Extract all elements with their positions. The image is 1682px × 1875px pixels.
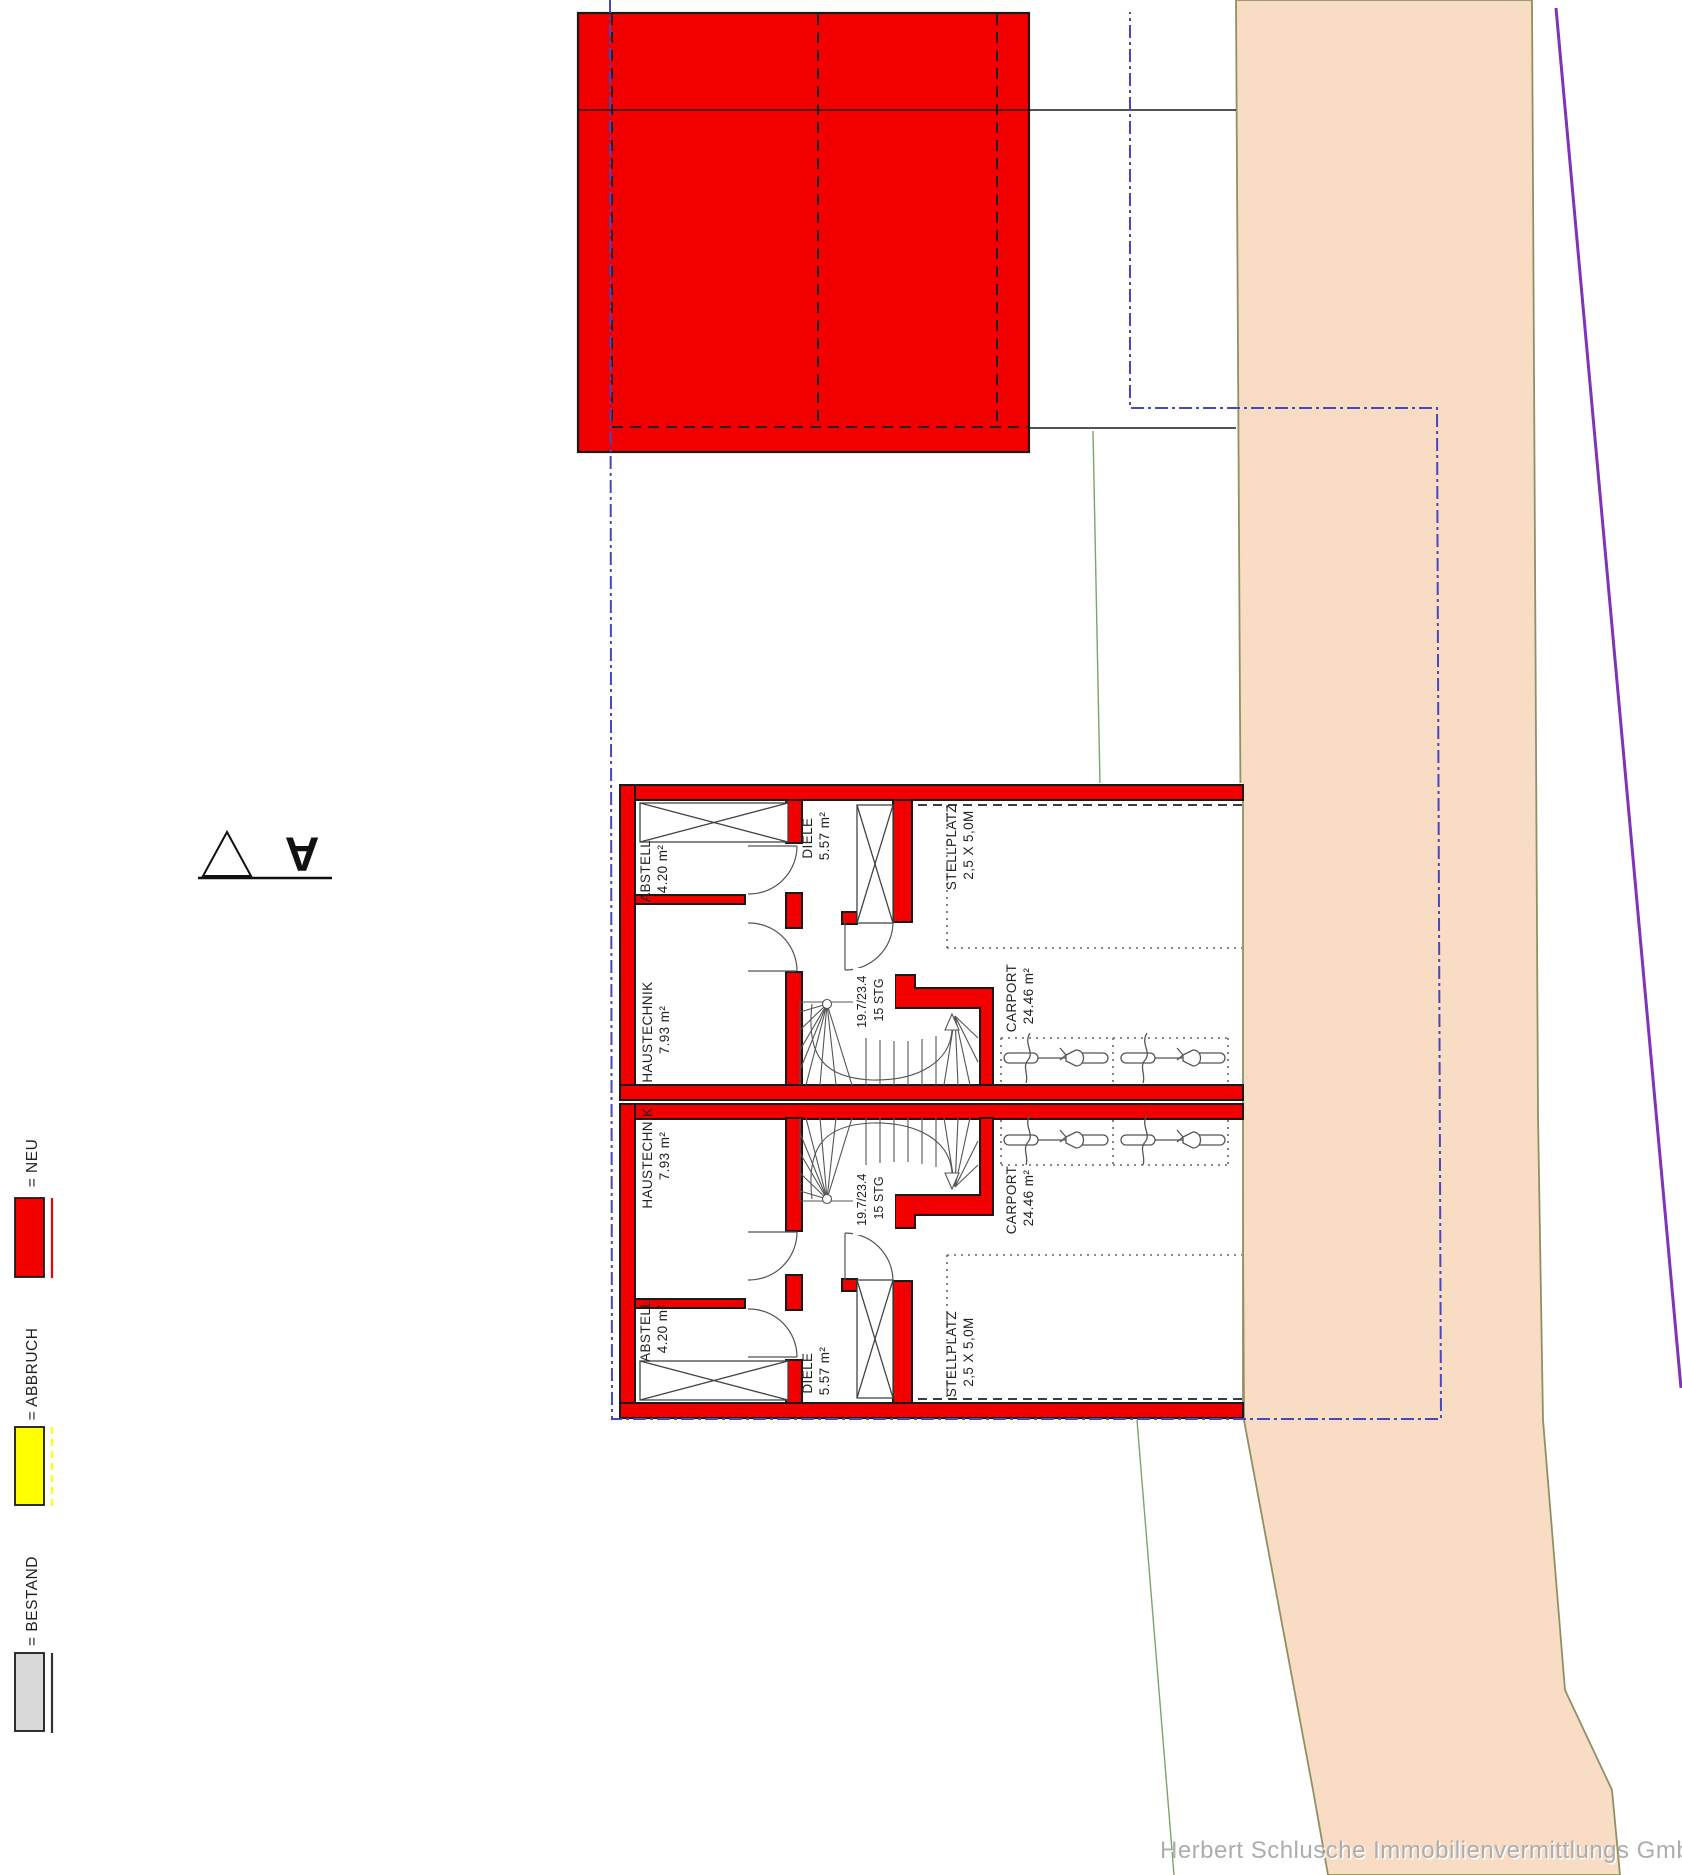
legend-label-neu: = NEU [24,1139,41,1188]
wall-u2-bottom [620,1403,1243,1418]
closet-u1-diele [857,805,893,923]
legend-swatch-bestand [15,1653,44,1731]
new-building-fill [578,13,1029,452]
closet-u2-abstell [640,1361,788,1400]
wall-u1-left [620,785,635,1100]
wall-u2-mid [786,1275,802,1310]
wall-party-lower [620,1104,1243,1119]
stair-newel-post [823,1195,832,1204]
site-plan-drawing: ABSTELL 4.20 m² DIELE 5.57 m² HAUSTECHNI… [0,0,1682,1875]
wall-u2-door-stub [842,1279,857,1291]
wall-party-upper [620,1085,1243,1100]
legend: = NEU = ABBRUCH = BESTAND [15,1139,52,1733]
legend-label-abbruch: = ABBRUCH [24,1328,41,1421]
section-marker-letter: A [285,827,320,880]
legend-swatch-abbruch [15,1427,44,1505]
road-area [1236,0,1620,1875]
terrain-line-green-lower [1137,1420,1174,1875]
legend-label-bestand: = BESTAND [24,1556,41,1646]
wall-u1-door-stub [842,912,857,924]
site-plan-sheet: ABSTELL 4.20 m² DIELE 5.57 m² HAUSTECHNI… [0,0,1682,1875]
wall-u2-left [620,1104,635,1418]
plan-background [616,783,1243,1420]
new-building-block [578,13,1236,452]
closet-u1-abstell [640,803,788,842]
wall-u1-diele [893,800,912,922]
terrain-line-green-upper [1093,431,1100,785]
wall-u2-diele [893,1281,912,1403]
boundary-line-purple [1556,8,1681,1388]
watermark: Herbert Schlusche Immobilienvermittlungs… [1160,1837,1682,1864]
legend-swatch-neu [15,1198,44,1277]
wall-u1-mid [786,893,802,928]
wall-u1-top [620,785,1243,800]
closet-u2-diele [857,1280,893,1398]
stair-newel-post [823,1000,832,1009]
section-marker-triangle [203,832,251,876]
floorplan: ABSTELL 4.20 m² DIELE 5.57 m² HAUSTECHNI… [616,783,1243,1420]
section-marker: A [198,827,332,880]
